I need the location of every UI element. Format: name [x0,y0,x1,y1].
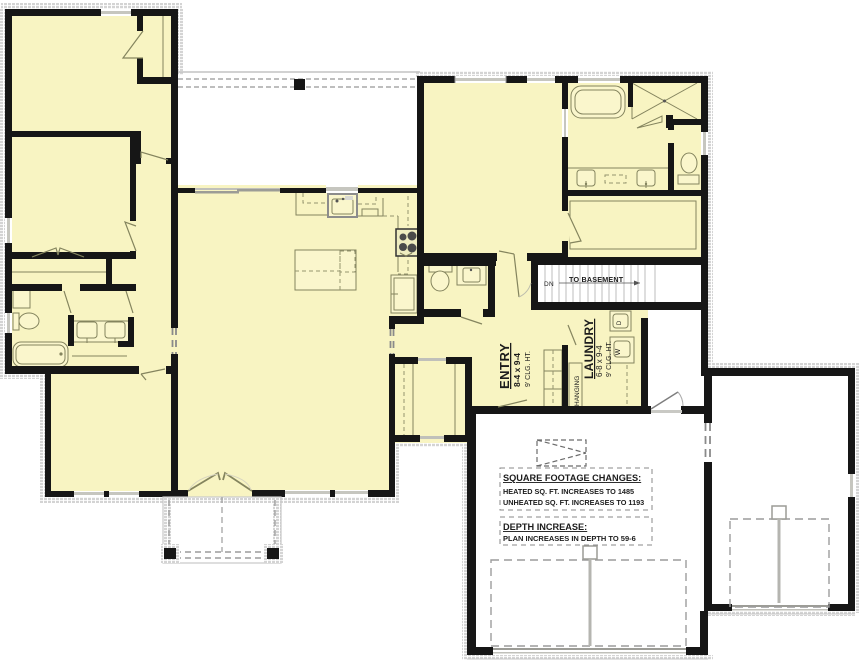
svg-text:DN: DN [544,281,554,288]
svg-text:PLAN INCREASES IN DEPTH TO 59-: PLAN INCREASES IN DEPTH TO 59-6 [503,534,636,543]
svg-text:W: W [615,348,622,355]
svg-text:9' CLG. HT.: 9' CLG. HT. [606,341,613,377]
svg-text:SQUARE FOOTAGE CHANGES:: SQUARE FOOTAGE CHANGES: [503,473,641,483]
svg-text:LAUNDRY: LAUNDRY [582,319,596,379]
svg-text:6-8 x 9-4: 6-8 x 9-4 [595,345,604,377]
svg-text:9' CLG. HT.: 9' CLG. HT. [525,351,532,387]
svg-text:DEPTH INCREASE:: DEPTH INCREASE: [503,522,587,532]
svg-text:HANGING: HANGING [574,376,581,406]
svg-text:UNHEATED SQ. FT. INCREASES TO: UNHEATED SQ. FT. INCREASES TO 1193 [503,498,644,507]
svg-text:HEATED SQ. FT. INCREASES TO 14: HEATED SQ. FT. INCREASES TO 1485 [503,487,634,496]
svg-text:ENTRY: ENTRY [497,343,512,389]
svg-text:D: D [617,320,623,325]
svg-text:TO BASEMENT: TO BASEMENT [569,275,624,284]
svg-text:8-4 x 9-4: 8-4 x 9-4 [512,353,522,387]
